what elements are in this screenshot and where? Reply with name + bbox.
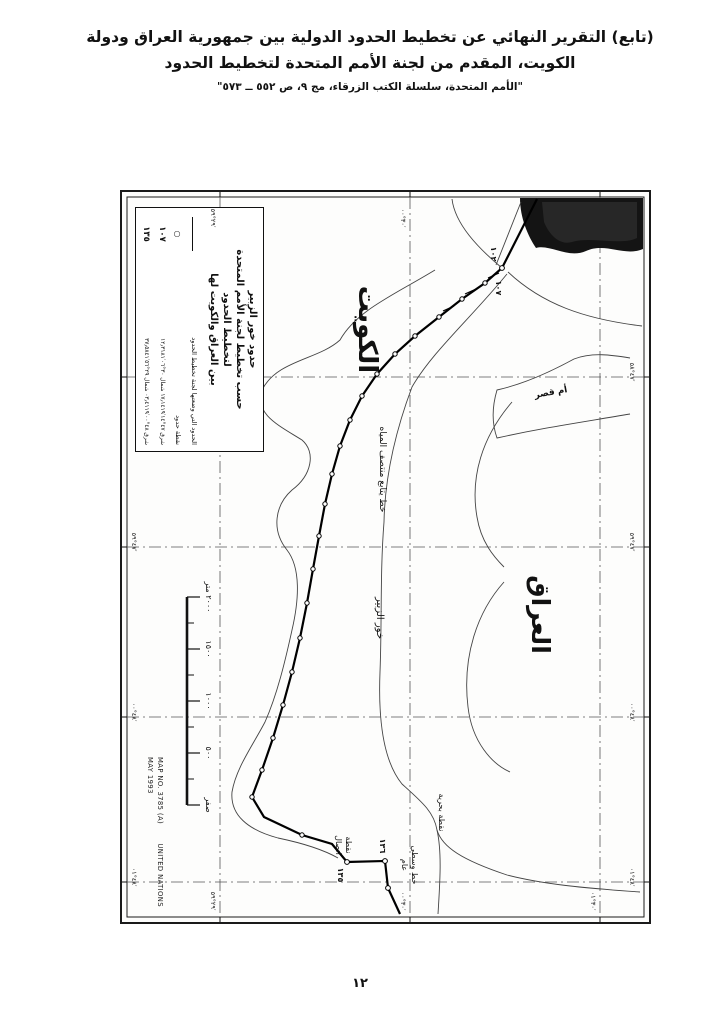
label-point-136: ١٣٦: [378, 838, 388, 854]
median-word1: خط وسطي: [410, 846, 419, 885]
label-thalweg: خط يتابع منتصف المياه: [372, 407, 392, 532]
header-title-line2: الكويت، المقدم من لجنة الأمم المتحدة لتخ…: [60, 52, 680, 75]
legend-rows: الحدود التي وضعتها لجنة تخطيط الحدود نقط…: [138, 214, 202, 445]
scale-label-1500: ١٥٠٠: [203, 634, 214, 664]
junction-word2: اتصال: [334, 835, 343, 855]
label-point-102: ١٠٢: [489, 245, 499, 263]
graticule-left-4801: ٤٨°٠١′: [130, 865, 139, 889]
header-title-line1: (تابع) التقرير النهائي عن تخطيط الحدود ا…: [60, 24, 680, 52]
graticule-right-4800: ٤٨°٠٠′: [628, 700, 637, 724]
point-135-coordinates: شرق ٤٨°٠٠′٠٣٫٤١١٩ شمال ٢٩°٥٦′٣٧٫٥٨٤١: [143, 338, 149, 445]
map-date: MAY 1993: [146, 757, 154, 794]
label-iraq: العراق: [522, 567, 560, 662]
scale-bar: [187, 597, 200, 805]
legend-title-line1: حدود خور الزبير: [246, 214, 259, 445]
junction-word1: نقطة: [344, 836, 353, 853]
graticule-bottom-3000: ٣٠°٠٠′: [399, 889, 408, 913]
graticule-bottom-3001: ٣٠°٠١′: [589, 889, 598, 913]
scale-label-1000: ١٠٠٠: [203, 686, 214, 716]
page-header: (تابع) التقرير النهائي عن تخطيط الحدود ا…: [60, 24, 680, 93]
map-legend: حدود خور الزبير حسب تخطيط لجنة الأمم الم…: [135, 207, 264, 452]
legend-row-boundary: الحدود التي وضعتها لجنة تخطيط الحدود: [186, 214, 202, 445]
boundary-point-symbol: ○: [174, 214, 183, 254]
scale-label-2000: ٢٠٠٠ متر: [203, 574, 214, 620]
point-107-coordinates: شرق ٤٧°١٤′١٧٫١٤١٩ شمال ٣٠°٠٦′١٢٫٣١٨١: [159, 338, 165, 445]
legend-title: حدود خور الزبير حسب تخطيط لجنة الأمم الم…: [207, 214, 259, 445]
label-junction-point: نقطة اتصال: [332, 828, 354, 862]
label-khor-zubair: خور الزبير: [370, 587, 390, 649]
dark-area-texture: [542, 202, 637, 243]
legend-row-135: شرق ٤٨°٠٠′٠٣٫٤١١٩ شمال ٢٩°٥٦′٣٧٫٥٨٤١ ١٣٥: [138, 214, 154, 445]
label-maritime-point: نقطة بحرية: [434, 790, 450, 835]
map-frame: حدود خور الزبير حسب تخطيط لجنة الأمم الم…: [120, 190, 651, 924]
point-135-number: ١٣٥: [141, 214, 151, 254]
scale-label-500: ٥٠٠: [203, 738, 214, 768]
graticule-right-4801: ٤٨°٠١′: [628, 865, 637, 889]
median-word2: عام: [400, 859, 409, 871]
map-org: UNITED NATIONS: [155, 843, 165, 907]
map-credit: MAP NO. 3785 (A) UNITED NATIONS MAY 1993: [145, 757, 165, 907]
page-number: ١٢: [340, 976, 380, 991]
map-number: MAP NO. 3785 (A): [155, 757, 165, 824]
label-point-135: ١٣٥: [336, 867, 346, 883]
header-source-line: "الأمم المتحدة، سلسلة الكتب الزرقاء، مج …: [60, 81, 680, 93]
legend-title-line3: لتخطيط الحدود: [220, 214, 233, 445]
legend-row-107: شرق ٤٧°١٤′١٧٫١٤١٩ شمال ٣٠°٠٦′١٢٫٣١٨١ ١٠٧: [154, 214, 170, 445]
label-median-line: خط وسطي عام: [398, 840, 420, 890]
legend-title-line4: بين العراق والكويت لها: [207, 214, 220, 445]
document-page: (تابع) التقرير النهائي عن تخطيط الحدود ا…: [0, 0, 707, 1036]
graticule-left-4800: ٤٨°٠٠′: [130, 700, 139, 724]
graticule-bottom-2959: ٢٩°٥٩′: [209, 889, 218, 913]
legend-title-line2: حسب تخطيط لجنة الأمم المتحدة: [233, 214, 246, 445]
graticule-top-2959: ٢٩°٥٩′: [209, 206, 218, 230]
graticule-left-4759: ٤٧°٥٩′: [130, 530, 139, 554]
label-point-107: ١٠٧: [494, 279, 504, 297]
legend-point-label: نقطة حدود: [174, 415, 182, 445]
point-107-number: ١٠٧: [157, 214, 167, 254]
boundary-line-symbol: [185, 214, 204, 254]
label-kuwait: الكويت: [347, 257, 387, 402]
scale-label-zero: صفر: [203, 794, 214, 816]
graticule-right-4758: ٤٧°٥٨′: [628, 360, 637, 384]
graticule-right-4759: ٤٧°٥٩′: [628, 530, 637, 554]
graticule-top-3000: ٣٠°٠٠′: [399, 206, 408, 230]
legend-boundary-label: الحدود التي وضعتها لجنة تخطيط الحدود: [190, 337, 198, 445]
